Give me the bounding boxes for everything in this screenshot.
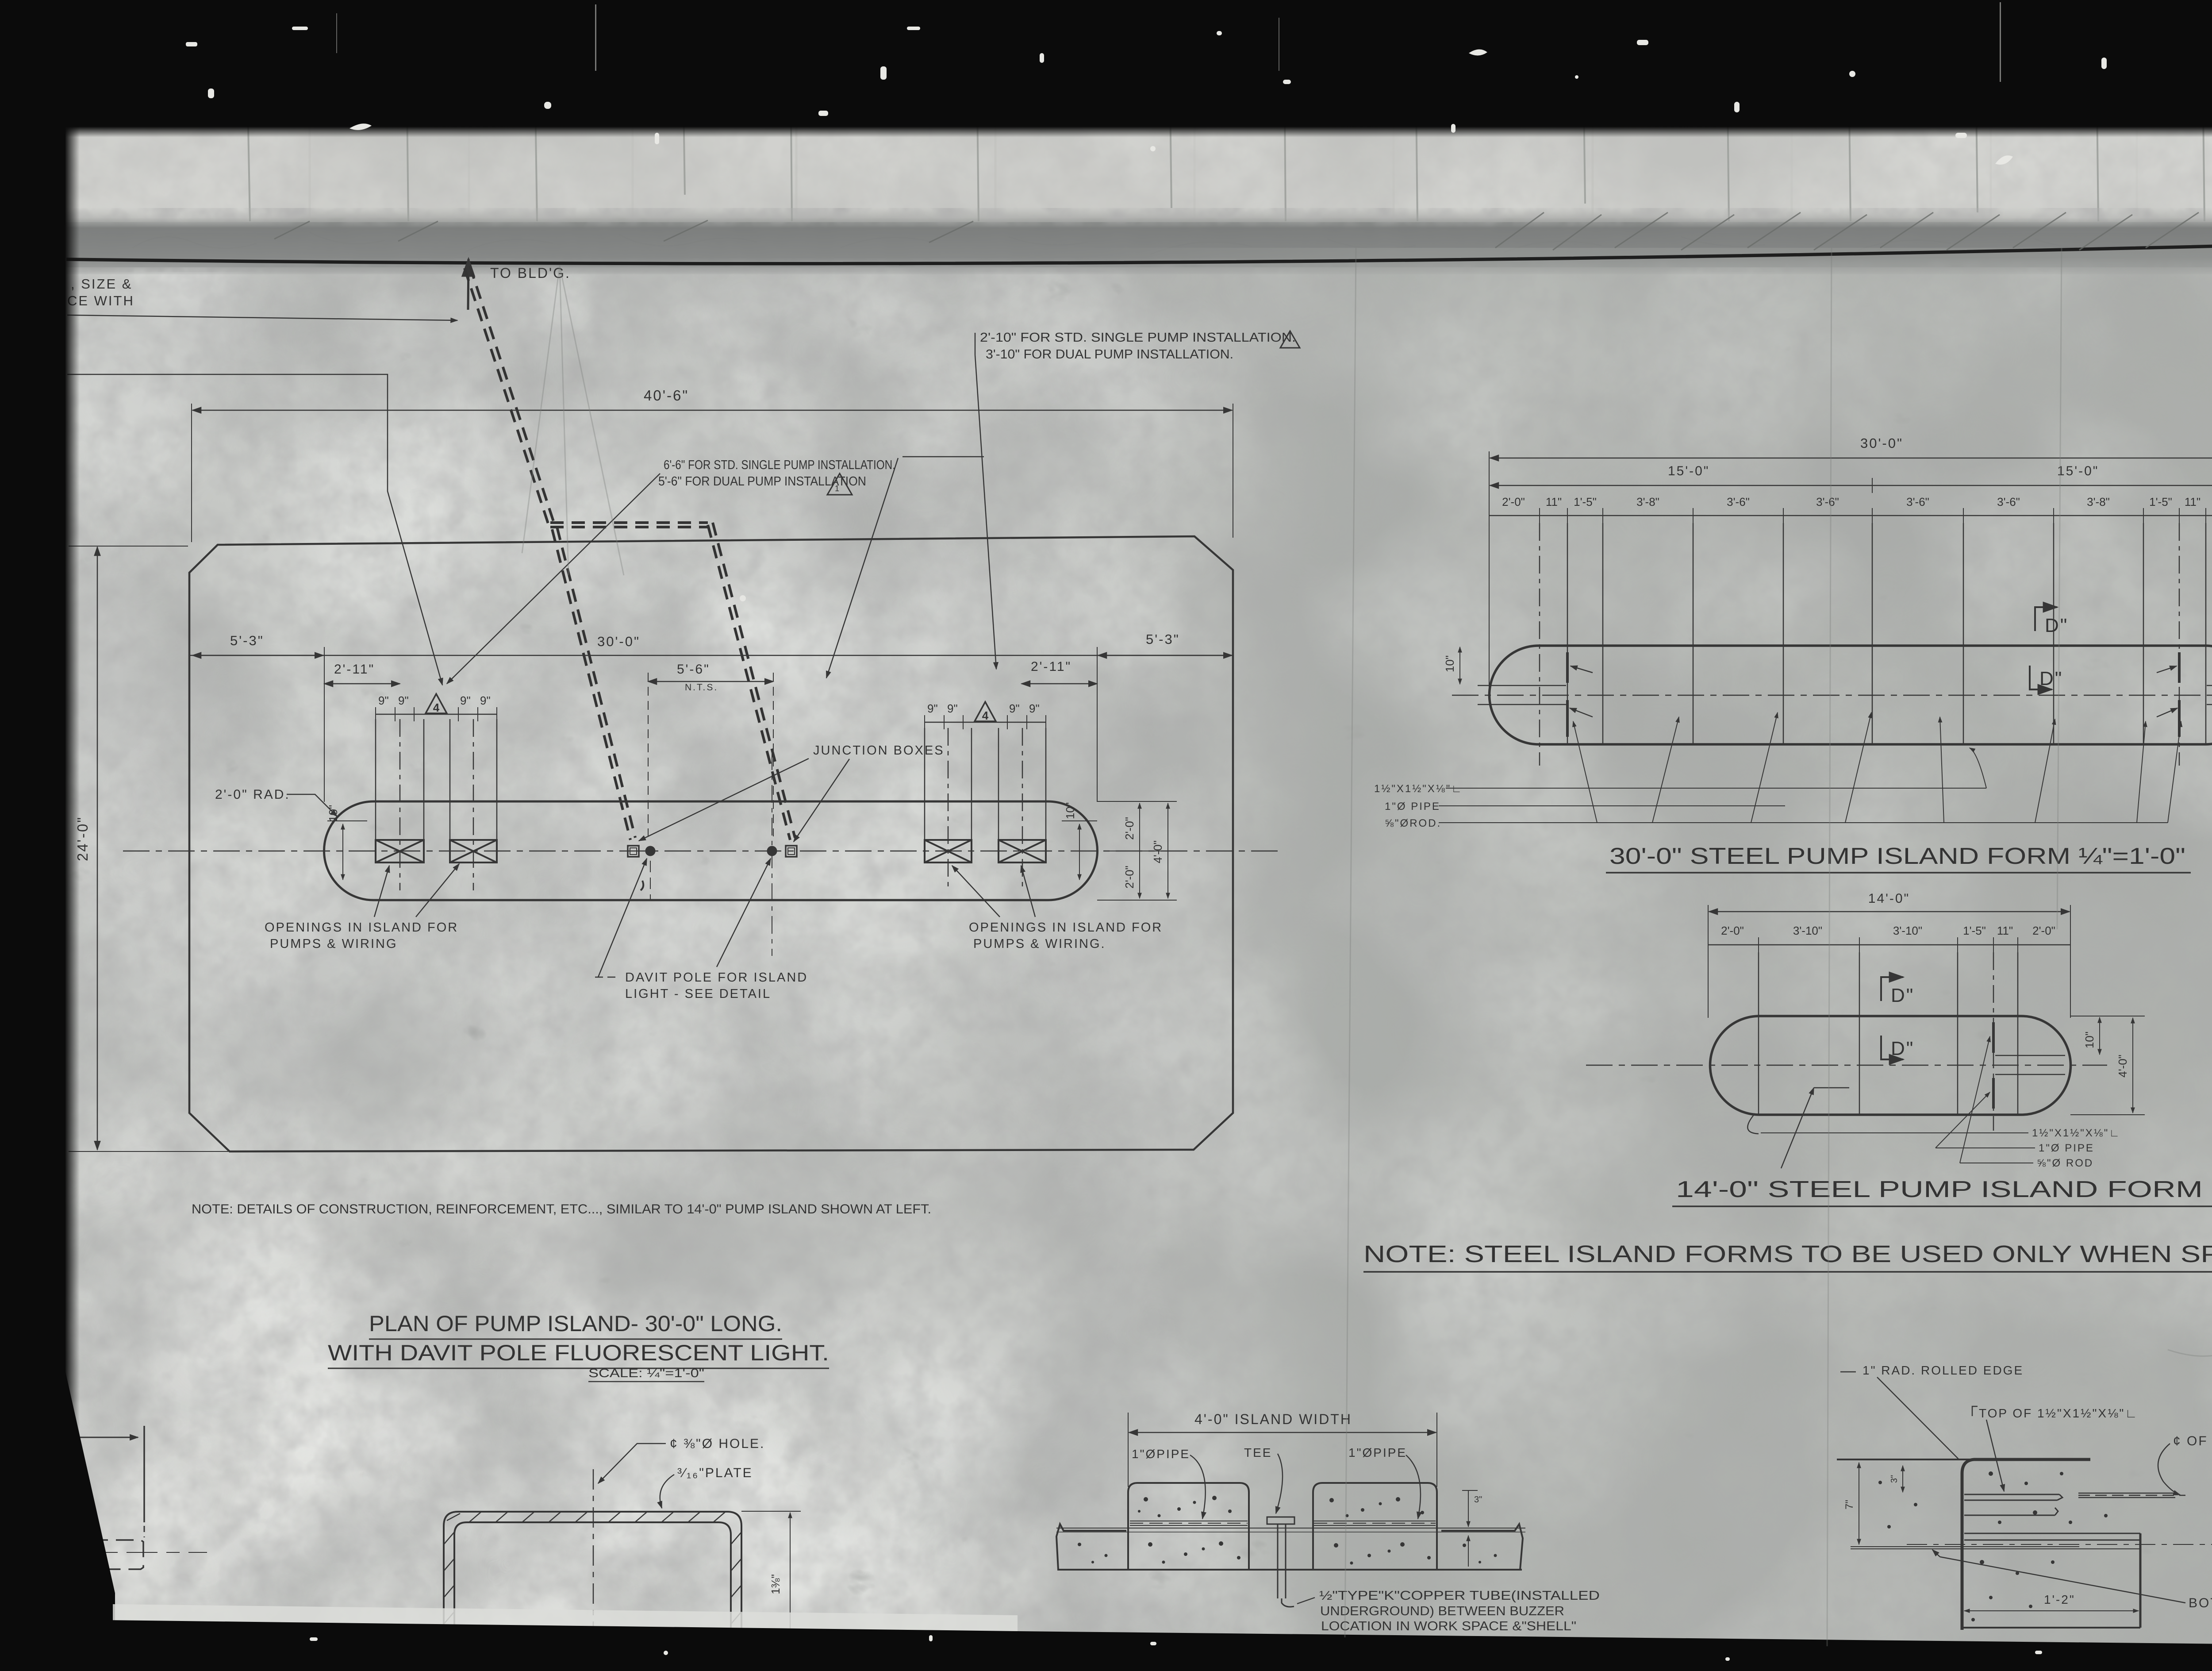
svg-text:6'-6" FOR STD. SINGLE PUMP INS: 6'-6" FOR STD. SINGLE PUMP INSTALLATION. [664, 458, 895, 472]
svg-text:, SIZE &: , SIZE & [71, 276, 132, 292]
svg-text:1'-5": 1'-5" [1574, 495, 1597, 508]
svg-text:40'-6": 40'-6" [644, 387, 689, 404]
svg-text:5'-6": 5'-6" [677, 662, 710, 677]
svg-text:1"ØPIPE: 1"ØPIPE [1132, 1447, 1190, 1461]
svg-text:1"ØPIPE: 1"ØPIPE [1348, 1446, 1407, 1459]
svg-text:7": 7" [1843, 1500, 1855, 1509]
svg-text:11": 11" [1997, 924, 2013, 937]
svg-text:1⅜": 1⅜" [769, 1574, 782, 1594]
svg-text:3'-6": 3'-6" [1727, 495, 1750, 508]
svg-text:4'-0" ISLAND WIDTH: 4'-0" ISLAND WIDTH [1194, 1411, 1352, 1427]
svg-text:3'-8": 3'-8" [2087, 495, 2110, 508]
svg-text:1½"X1½"X⅛"∟: 1½"X1½"X⅛"∟ [1374, 783, 1463, 795]
svg-text:NOTE: STEEL ISLAND FORMS TO BE: NOTE: STEEL ISLAND FORMS TO BE USED ONLY… [1363, 1241, 2212, 1267]
svg-text:3'-6": 3'-6" [1997, 495, 2020, 508]
svg-text:3": 3" [1889, 1475, 1899, 1483]
svg-text:30'-0": 30'-0" [597, 634, 640, 649]
svg-text:2'-11": 2'-11" [334, 662, 375, 677]
svg-text:2'-0": 2'-0" [2032, 924, 2055, 937]
svg-text:9": 9" [378, 694, 389, 707]
svg-text:2'-0": 2'-0" [1721, 924, 1744, 937]
svg-text:4'-0": 4'-0" [2116, 1055, 2129, 1078]
svg-text:TEE: TEE [1244, 1446, 1272, 1459]
svg-text:JUNCTION BOXES: JUNCTION BOXES [813, 743, 945, 758]
svg-text:OPENINGS IN ISLAND FOR: OPENINGS IN ISLAND FOR [265, 920, 458, 935]
svg-text:10": 10" [2083, 1032, 2096, 1048]
svg-text:3": 3" [1474, 1495, 1482, 1505]
svg-text:2'-10" FOR STD. SINGLE PUMP IN: 2'-10" FOR STD. SINGLE PUMP INSTALLATION… [980, 331, 1296, 345]
svg-text:WITH DAVIT POLE FLUORESCENT LI: WITH DAVIT POLE FLUORESCENT LIGHT. [328, 1340, 829, 1365]
svg-text:11": 11" [2185, 495, 2200, 508]
svg-text:10": 10" [1443, 655, 1456, 672]
svg-text:1'-2": 1'-2" [2044, 1593, 2075, 1606]
svg-text:3'-10": 3'-10" [1893, 924, 1922, 937]
svg-text:2'-0" RAD.: 2'-0" RAD. [215, 787, 290, 802]
svg-text:¢ OF ⅝"Ø ROD.: ¢ OF ⅝"Ø ROD. [2173, 1434, 2212, 1448]
svg-text:5'-3": 5'-3" [1146, 631, 1180, 647]
svg-text:N.T.S.: N.T.S. [685, 682, 718, 693]
svg-text:¢ ⅜"Ø HOLE.: ¢ ⅜"Ø HOLE. [670, 1436, 765, 1451]
svg-text:9": 9" [1029, 702, 1040, 715]
svg-text:3'-8": 3'-8" [1636, 495, 1659, 508]
svg-text:LIGHT - SEE DETAIL: LIGHT - SEE DETAIL [625, 987, 771, 1001]
svg-text:9": 9" [947, 702, 958, 715]
svg-text:LOCATION IN WORK SPACE &"SHELL: LOCATION IN WORK SPACE &"SHELL" [1321, 1619, 1576, 1633]
svg-text:9": 9" [460, 694, 471, 707]
svg-text:4: 4 [982, 709, 989, 722]
svg-text:3'-6": 3'-6" [1816, 495, 1839, 508]
svg-text:9": 9" [398, 694, 409, 707]
svg-text:14'-0" STEEL PUMP ISLAND FORM: 14'-0" STEEL PUMP ISLAND FORM ¼"=1'-0" [1676, 1177, 2212, 1202]
svg-text:15'-0": 15'-0" [1668, 464, 1709, 478]
svg-text:D": D" [1891, 985, 1914, 1006]
svg-text:30'-0" STEEL PUMP ISLAND FORM: 30'-0" STEEL PUMP ISLAND FORM ¼"=1'-0" [1609, 843, 2185, 869]
svg-text:1" RAD. ROLLED EDGE: 1" RAD. ROLLED EDGE [1863, 1363, 2024, 1377]
svg-text:DAVIT POLE FOR ISLAND: DAVIT POLE FOR ISLAND [625, 970, 808, 985]
svg-text:⅝"Ø ROD: ⅝"Ø ROD [2037, 1157, 2093, 1169]
svg-text:1'-5": 1'-5" [2149, 495, 2172, 508]
svg-text:1½"X1½"X⅛"∟: 1½"X1½"X⅛"∟ [2032, 1127, 2121, 1139]
svg-text:1"Ø PIPE: 1"Ø PIPE [2039, 1142, 2094, 1154]
svg-text:5'-3": 5'-3" [230, 633, 264, 648]
svg-text:OPENINGS IN ISLAND FOR: OPENINGS IN ISLAND FOR [969, 920, 1163, 935]
svg-text:1: 1 [835, 484, 839, 493]
svg-text:D": D" [2039, 668, 2063, 689]
svg-text:9": 9" [927, 702, 938, 715]
svg-text:14'-0": 14'-0" [1868, 891, 1910, 906]
svg-text:BOTTOM OF 1"Ø PIPE.: BOTTOM OF 1"Ø PIPE. [2189, 1596, 2212, 1610]
svg-text:PLAN OF PUMP ISLAND- 30'-0" L: PLAN OF PUMP ISLAND- 30'-0" LONG. [369, 1311, 782, 1336]
svg-text:11": 11" [1546, 495, 1562, 508]
svg-text:3'-10": 3'-10" [1793, 924, 1822, 937]
svg-text:1'-5": 1'-5" [1963, 924, 1986, 937]
svg-text:3'-10" FOR DUAL PUMP INSTALLAT: 3'-10" FOR DUAL PUMP INSTALLATION. [986, 347, 1233, 362]
svg-text:15'-0": 15'-0" [2057, 464, 2099, 478]
svg-text:4: 4 [433, 701, 440, 714]
svg-text:SCALE: ¼"=1'-0": SCALE: ¼"=1'-0" [588, 1366, 704, 1380]
svg-text:PUMPS & WIRING: PUMPS & WIRING [270, 937, 398, 951]
svg-text:30'-0": 30'-0" [1860, 435, 1903, 451]
svg-text:2'-0": 2'-0" [1123, 817, 1136, 840]
svg-text:UNDERGROUND) BETWEEN BUZZER: UNDERGROUND) BETWEEN BUZZER [1320, 1604, 1564, 1618]
svg-text:1"Ø PIPE: 1"Ø PIPE [1385, 801, 1440, 812]
svg-text:9": 9" [1009, 702, 1020, 715]
svg-text:4'-0": 4'-0" [1151, 840, 1164, 863]
svg-text:10": 10" [1064, 802, 1077, 819]
svg-text:D": D" [2045, 615, 2068, 636]
svg-text:TOP OF 1½"X1½"X⅛"∟: TOP OF 1½"X1½"X⅛"∟ [1979, 1406, 2139, 1420]
svg-text:2'-0": 2'-0" [1123, 866, 1136, 889]
svg-text:⅝"ØROD.: ⅝"ØROD. [1385, 817, 1441, 829]
svg-text:½"TYPE"K"COPPER TUBE(INSTALLED: ½"TYPE"K"COPPER TUBE(INSTALLED [1319, 1589, 1600, 1603]
svg-text:D": D" [1891, 1038, 1914, 1059]
svg-text:PUMPS & WIRING.: PUMPS & WIRING. [973, 937, 1106, 951]
svg-text:3'-6": 3'-6" [1906, 495, 1929, 508]
svg-text:2'-11": 2'-11" [1031, 659, 1071, 674]
svg-text:NOTE: DETAILS OF CONSTRUCTION: NOTE: DETAILS OF CONSTRUCTION, REINFORCE… [192, 1202, 931, 1217]
svg-text:³⁄₁₆"PLATE: ³⁄₁₆"PLATE [677, 1466, 753, 1480]
svg-text:2'-0": 2'-0" [1502, 495, 1525, 508]
svg-text:9": 9" [480, 694, 491, 707]
